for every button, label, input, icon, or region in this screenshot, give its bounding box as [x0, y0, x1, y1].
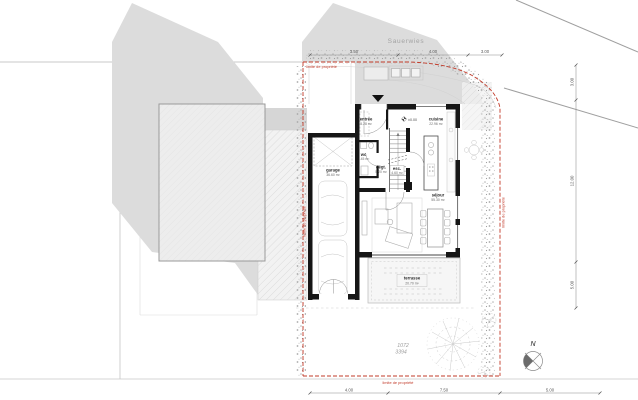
dim-bottom-2: 7.50 [440, 387, 449, 392]
house: terrasse 20.70 m² garage 36.60 m² [308, 104, 460, 303]
dim-right-1: 3.00 [570, 77, 575, 86]
site-plan-page: terrasse 20.70 m² garage 36.60 m² [0, 0, 638, 400]
dim-top-1: 3.50 [350, 49, 359, 54]
room-label-terrasse: terrasse [404, 276, 421, 281]
boundary-label-bottom: limite de propriété [383, 380, 414, 385]
room-label-sejour: séjour [432, 193, 445, 198]
neighbor-building [159, 104, 265, 261]
north-label: N [530, 341, 536, 348]
parcel-numbers: 1072 3394 [395, 343, 409, 356]
tree [427, 318, 480, 371]
parcel-number-lower: 3394 [395, 350, 407, 356]
boundary-label-top: limite de propriété [306, 64, 337, 69]
garden-table [464, 140, 484, 160]
dim-bottom-1: 4.00 [345, 387, 354, 392]
dim-right-3: 5.00 [570, 280, 575, 289]
room-area-garage: 36.60 m² [326, 173, 340, 177]
boundary-label-left: limite de propriété [302, 206, 307, 237]
road-edge-lines [504, 0, 638, 128]
site-plan-svg: terrasse 20.70 m² garage 36.60 m² [0, 0, 638, 400]
room-area-sejour: 55.30 m² [431, 198, 445, 202]
room-area-terrasse: 20.70 m² [405, 282, 419, 286]
street-label: Sauerwies [388, 38, 425, 45]
room-area-wc: 1.45 m² [358, 157, 370, 161]
terrace: terrasse 20.70 m² [368, 258, 460, 303]
room-area-esc: 4.60 m² [391, 171, 403, 175]
level-marker-label: ±0.00 [408, 118, 417, 122]
north-arrow: N [524, 341, 543, 371]
dim-bottom-3: 5.00 [546, 387, 555, 392]
room-label-cuisine: cuisine [429, 117, 444, 122]
room-area-cuisine: 22.96 m² [429, 122, 443, 126]
dimension-bottom: 4.00 7.50 5.00 [309, 387, 602, 394]
boundary-label-right: limite de propriété [501, 197, 506, 228]
parcel-number-upper: 1072 [397, 343, 409, 349]
dim-top-3: 3.00 [481, 49, 490, 54]
room-area-entree: 5.28 m² [360, 122, 372, 126]
dimension-right: 3.00 12.00 5.00 [570, 64, 578, 310]
dim-top-2: 4.00 [429, 49, 438, 54]
room-label-garage: garage [326, 168, 340, 173]
dim-right-2: 12.00 [570, 175, 575, 186]
room-label-entree: entrée [360, 117, 373, 122]
